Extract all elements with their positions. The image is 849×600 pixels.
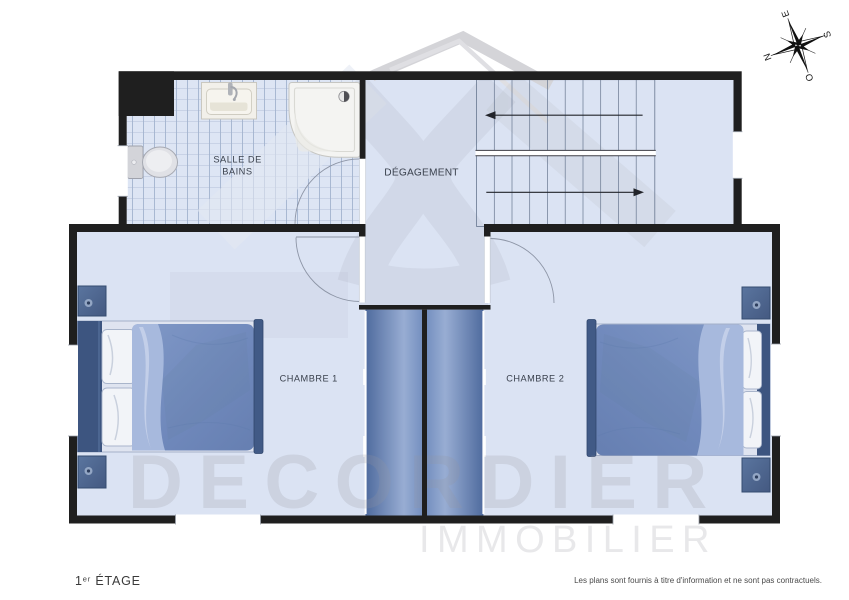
svg-text:CHAMBRE 1: CHAMBRE 1 [280, 374, 338, 384]
svg-text:IMMOBILIER: IMMOBILIER [419, 519, 717, 561]
svg-text:1er ÉTAGE: 1er ÉTAGE [75, 573, 141, 588]
svg-text:O: O [804, 72, 817, 83]
svg-text:S: S [822, 29, 835, 39]
svg-text:CHAMBRE 2: CHAMBRE 2 [506, 374, 564, 384]
svg-text:Les plans sont fournis à titre: Les plans sont fournis à titre d'informa… [574, 576, 822, 585]
svg-text:E: E [780, 9, 793, 19]
svg-text:BAINS: BAINS [222, 167, 252, 177]
svg-text:SALLE DE: SALLE DE [213, 155, 261, 165]
svg-text:N: N [762, 51, 775, 61]
svg-text:DÉGAGEMENT: DÉGAGEMENT [384, 165, 458, 178]
